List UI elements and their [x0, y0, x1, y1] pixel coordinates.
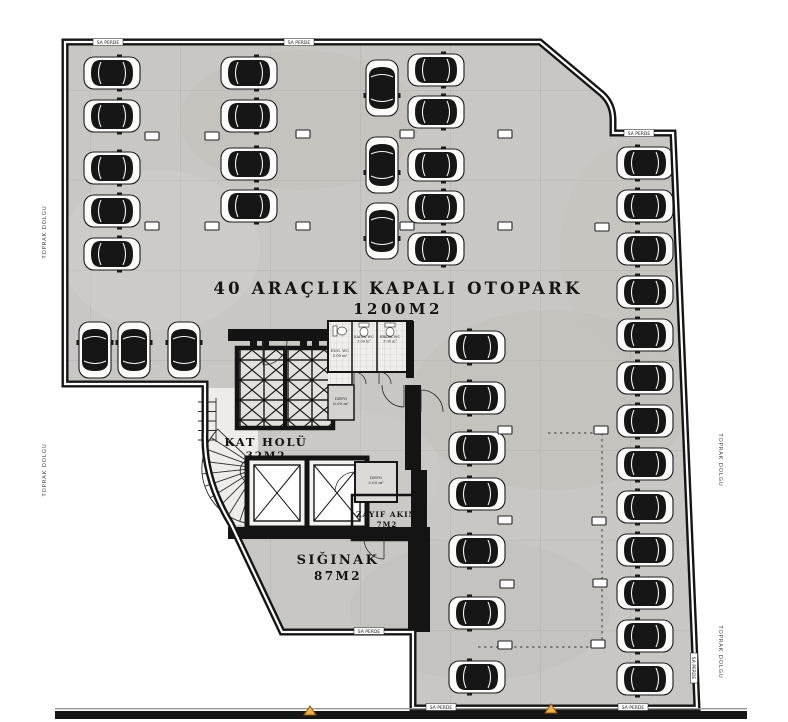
parked-car	[364, 137, 401, 193]
parked-car	[116, 322, 153, 378]
column-stub	[145, 222, 159, 230]
parked-car	[617, 532, 673, 569]
column-stub	[498, 516, 512, 524]
parked-car	[221, 146, 277, 183]
small-depo-area: 3.00 m²	[368, 480, 384, 485]
parked-car	[408, 147, 464, 184]
toprak-dolgu-label: TOPRAK DOLGU	[717, 624, 723, 678]
parked-car	[221, 98, 277, 135]
column-stub	[498, 130, 512, 138]
column-stub	[145, 132, 159, 140]
column-stub	[296, 222, 310, 230]
parked-car	[617, 188, 673, 225]
kadin-wc-area: 3.00 m²	[357, 340, 371, 344]
elevator-block	[247, 458, 367, 528]
toprak-dolgu-label: TOPRAK DOLGU	[42, 205, 48, 259]
column-stub	[592, 517, 606, 525]
parked-car	[408, 189, 464, 226]
sa-perde-tag: SA PERDE	[430, 705, 453, 711]
depo-area: 6.00 m²	[333, 401, 349, 406]
core-right-wall	[405, 385, 421, 470]
parked-car	[449, 476, 505, 513]
sa-perde-tag: SA PERDE	[622, 705, 645, 711]
parked-car	[84, 236, 140, 273]
parked-car	[617, 661, 673, 698]
parked-car	[449, 659, 505, 696]
floor-plan-drawing: 40 ARAÇLIK KAPALI OTOPARK 1200M2 KAT HOL…	[0, 0, 788, 722]
parked-car	[408, 231, 464, 268]
column-stub	[500, 580, 514, 588]
parked-car	[617, 403, 673, 440]
sa-perde-tag: SA PERDE	[628, 131, 651, 137]
parked-car	[364, 60, 401, 116]
parked-car	[617, 317, 673, 354]
column-stub	[400, 222, 414, 230]
main-title: 40 ARAÇLIK KAPALI OTOPARK	[213, 279, 582, 298]
parked-car	[84, 193, 140, 230]
parked-car	[364, 203, 401, 259]
sa-perde-tag: SA PERDE	[288, 40, 311, 46]
parked-car	[408, 94, 464, 131]
parked-car	[221, 55, 277, 92]
parked-car	[617, 145, 673, 182]
zayif-akim-label: ZAYIF AKIM	[356, 510, 418, 519]
siginak-label: SIĞINAK	[297, 551, 380, 568]
kadin-wc-label: KADIN WC	[354, 335, 374, 339]
shaft-grid	[237, 348, 333, 428]
parked-car	[84, 150, 140, 187]
sa-perde-tag: SA PERDE	[97, 40, 120, 46]
column-stub	[593, 579, 607, 587]
sa-perde-tag: SA PERDE	[358, 629, 381, 635]
parked-car	[166, 322, 203, 378]
section-marker	[304, 706, 316, 715]
parked-car	[617, 575, 673, 612]
toprak-dolgu-label: TOPRAK DOLGU	[42, 443, 48, 497]
parked-car	[617, 489, 673, 526]
parked-car	[84, 98, 140, 135]
erkek-wc-label: ERKEK WC	[380, 335, 401, 339]
parked-car	[449, 380, 505, 417]
column-stub	[498, 222, 512, 230]
eng-wc-area: 5.00 m²	[333, 353, 348, 358]
column-stub	[594, 426, 608, 434]
parked-car	[617, 360, 673, 397]
parked-car	[617, 446, 673, 483]
floor-plan-sheet: 40 ARAÇLIK KAPALI OTOPARK 1200M2 KAT HOL…	[0, 0, 788, 722]
parked-car	[617, 231, 673, 268]
parked-car	[408, 52, 464, 89]
column-stub	[205, 132, 219, 140]
parked-car	[221, 188, 277, 225]
kat-holu-label: KAT HOLÜ	[224, 435, 307, 449]
column-stub	[595, 223, 609, 231]
sa-perde-tag: SA PERDE	[690, 657, 696, 680]
parked-car	[84, 55, 140, 92]
main-title-area: 1200M2	[353, 300, 443, 318]
column-stub	[498, 426, 512, 434]
siginak-right-wall	[408, 527, 430, 632]
column-stub	[591, 640, 605, 648]
parked-car	[449, 430, 505, 467]
column-stub	[498, 641, 512, 649]
kat-holu-area: 32M2	[246, 450, 287, 462]
erkek-wc-area: 3.00 m²	[383, 340, 397, 344]
parked-car	[617, 618, 673, 655]
parked-car	[449, 533, 505, 570]
street-band	[55, 711, 747, 719]
toprak-dolgu-label: TOPRAK DOLGU	[717, 432, 723, 486]
parked-car	[77, 322, 114, 378]
column-stub	[205, 222, 219, 230]
parked-car	[617, 274, 673, 311]
parked-car	[449, 595, 505, 632]
parked-car	[449, 329, 505, 366]
column-stub	[400, 130, 414, 138]
siginak-area: 87M2	[314, 569, 362, 583]
zayif-akim-area: 7M2	[377, 520, 398, 529]
column-stub	[296, 130, 310, 138]
